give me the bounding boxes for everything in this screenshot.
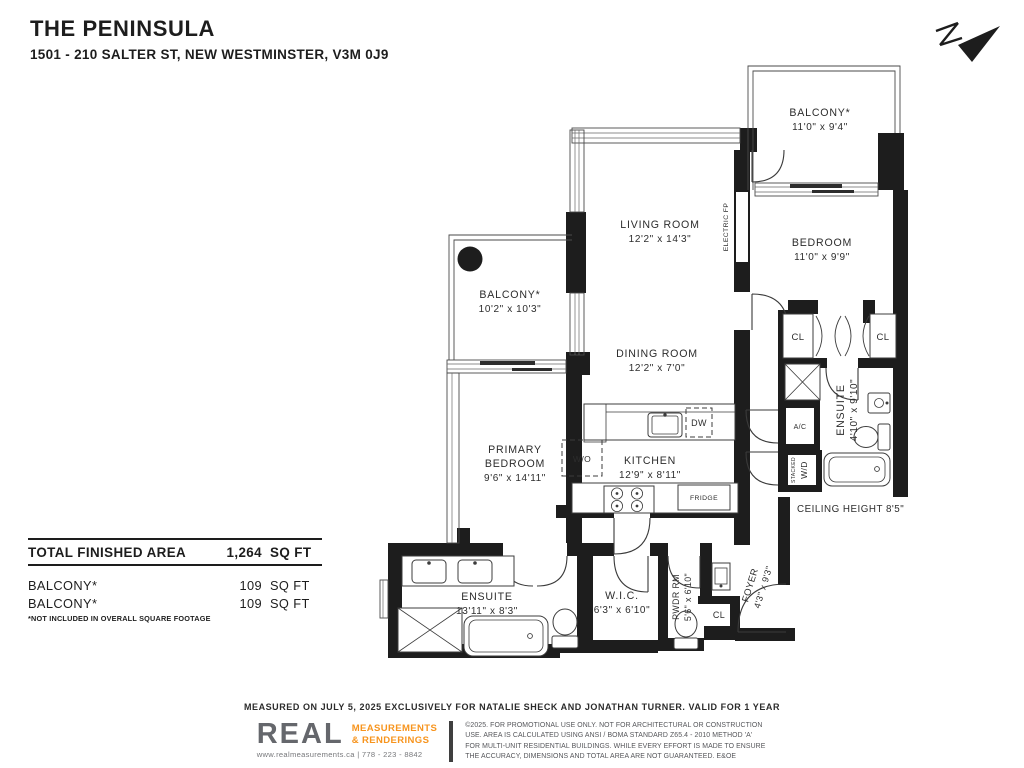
total-area-value: 1,264 [208,545,270,560]
label-stacked: STACKED [791,457,797,483]
dims-bedroom: 11'0" x 9'9" [794,252,850,263]
dims-wic: 6'3" x 6'10" [594,605,650,616]
floor-plan-page: THE PENINSULA 1501 - 210 SALTER ST, NEW … [0,0,1024,768]
label-kitchen: KITCHEN [624,455,676,467]
logo-sub-renderings: & RENDERINGS [352,735,438,747]
balcony-area-value: 109 [208,596,270,611]
sink-upper-ensuite [868,393,890,413]
fireplace-inset [736,192,748,262]
label-powder-room: PWDR RM [671,574,681,620]
ceiling-height-note: CEILING HEIGHT 8'5" [797,504,904,515]
stove [604,486,654,513]
label-primary-bedroom: PRIMARY [488,444,542,456]
dims-kitchen: 12'9" x 8'11" [619,470,681,481]
dims-primary-bedroom: 9'6" x 14'11" [484,473,546,484]
label-dishwasher: DW [691,418,707,428]
dims-balcony-left: 10'2" x 10'3" [479,304,542,315]
balcony-area-unit: SQ FT [270,578,322,593]
label-balcony-left: BALCONY* [479,289,540,301]
bathtub-upper [824,453,890,486]
dims-powder-room: 5'6" x 6'10" [683,573,693,621]
logo-contact: www.realmeasurements.ca | 778 - 223 - 88… [257,750,438,759]
balcony-area-unit: SQ FT [270,596,322,611]
footer-divider [449,721,453,762]
company-logo: REAL MEASUREMENTS & RENDERINGS www.realm… [257,721,438,762]
balcony-area-label: BALCONY* [28,578,208,593]
label-fridge: FRIDGE [690,495,718,502]
label-closet-3: CL [713,610,725,620]
floor-plan-svg: BALCONY* 11'0" x 9'4" BEDROOM 11'0" x 9'… [0,0,1024,768]
bathtub-lower [464,616,548,656]
label-ac: A/C [794,424,807,431]
dims-ensuite-lower: 13'11" x 8'3" [456,606,518,617]
shower-upper [785,364,820,400]
logo-wordmark: REAL [257,721,344,747]
sink-powder [712,563,730,590]
dims-dining-room: 12'2" x 7'0" [629,363,685,374]
total-area-label: TOTAL FINISHED AREA [28,545,208,560]
label-wic: W.I.C. [605,590,639,602]
area-table: TOTAL FINISHED AREA 1,264 SQ FT BALCONY*… [28,538,322,623]
measured-note: MEASURED ON JULY 5, 2025 EXCLUSIVELY FOR… [0,702,1024,712]
balcony-area-value: 109 [208,578,270,593]
total-area-row: TOTAL FINISHED AREA 1,264 SQ FT [28,538,322,566]
label-ensuite-upper: ENSUITE [835,384,847,436]
vanity-lower-ensuite [402,556,514,586]
label-bedroom: BEDROOM [792,237,852,249]
balcony-area-row: BALCONY* 109 SQ FT [28,576,322,594]
total-area-unit: SQ FT [270,545,322,560]
label-primary-bedroom-2: BEDROOM [485,458,545,470]
footer-disclaimer: ©2025. FOR PROMOTIONAL USE ONLY. NOT FOR… [465,721,767,762]
dims-ensuite-upper: 4'10" x 9'10" [849,379,860,442]
label-living-room: LIVING ROOM [620,219,699,231]
label-electric-fp: ELECTRIC FP [723,203,730,252]
logo-sub-measurements: MEASUREMENTS [352,723,438,735]
dims-living-room: 12'2" x 14'3" [629,234,692,245]
area-footnote: *NOT INCLUDED IN OVERALL SQUARE FOOTAGE [28,614,322,623]
north-arrow-icon [936,23,1000,62]
label-closet-2: CL [877,332,890,343]
kitchen-island [584,404,735,442]
balcony-area-label: BALCONY* [28,596,208,611]
label-balcony-top: BALCONY* [789,107,850,119]
dims-balcony-top: 11'0" x 9'4" [792,122,848,133]
label-closet-1: CL [792,332,805,343]
label-dining-room: DINING ROOM [616,348,698,360]
label-ensuite-lower: ENSUITE [461,591,513,603]
footer: MEASURED ON JULY 5, 2025 EXCLUSIVELY FOR… [0,702,1024,762]
toilet-lower-ensuite [552,609,578,648]
shower-lower [398,608,462,652]
label-wd: W/D [799,461,809,479]
balcony-area-row: BALCONY* 109 SQ FT [28,594,322,612]
label-wall-oven: W/O [573,454,591,464]
